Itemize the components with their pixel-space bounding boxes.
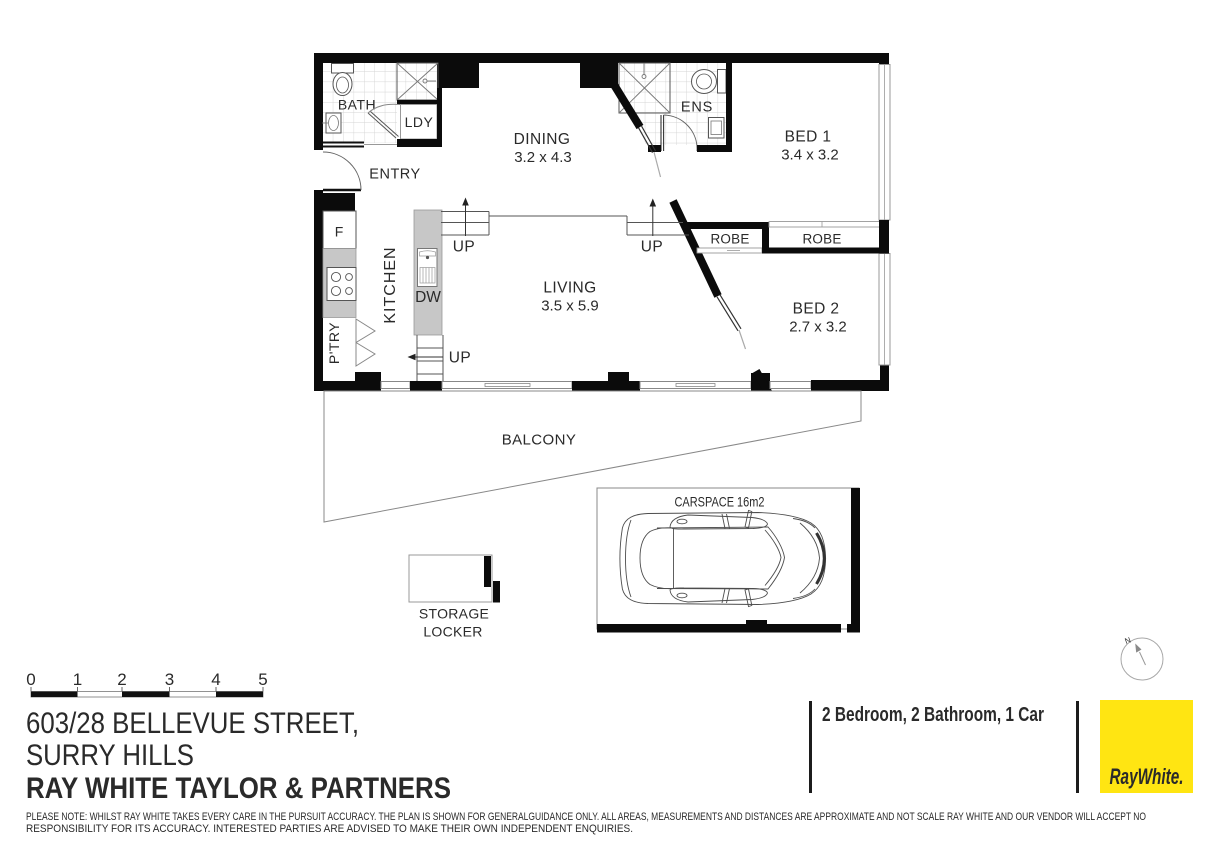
svg-text:2.7 x 3.2: 2.7 x 3.2 bbox=[789, 319, 847, 336]
svg-text:BED 2: BED 2 bbox=[793, 301, 840, 318]
svg-text:CARSPACE 16m2: CARSPACE 16m2 bbox=[675, 494, 765, 510]
svg-text:STORAGE: STORAGE bbox=[419, 606, 489, 622]
svg-text:RESPONSIBILITY FOR ITS ACCURAC: RESPONSIBILITY FOR ITS ACCURACY. INTERES… bbox=[26, 823, 633, 835]
svg-text:RayWhite.: RayWhite. bbox=[1110, 764, 1184, 789]
svg-text:4: 4 bbox=[211, 670, 220, 689]
svg-text:SURRY HILLS: SURRY HILLS bbox=[26, 739, 194, 772]
svg-text:603/28 BELLEVUE STREET,: 603/28 BELLEVUE STREET, bbox=[26, 707, 359, 740]
svg-text:BED 1: BED 1 bbox=[785, 129, 832, 146]
svg-text:PLEASE NOTE: WHILST RAY WHITE: PLEASE NOTE: WHILST RAY WHITE TAKES EVER… bbox=[26, 811, 1146, 823]
svg-text:DINING: DINING bbox=[514, 131, 571, 148]
svg-text:LOCKER: LOCKER bbox=[423, 624, 482, 640]
svg-text:ROBE: ROBE bbox=[802, 232, 841, 247]
svg-text:LIVING: LIVING bbox=[543, 280, 596, 297]
svg-text:0: 0 bbox=[26, 670, 35, 689]
svg-text:BALCONY: BALCONY bbox=[502, 432, 577, 449]
svg-text:3.4 x 3.2: 3.4 x 3.2 bbox=[781, 147, 839, 164]
svg-text:P'TRY: P'TRY bbox=[326, 322, 342, 364]
svg-text:UP: UP bbox=[449, 350, 472, 367]
svg-text:2: 2 bbox=[117, 670, 126, 689]
svg-text:UP: UP bbox=[453, 239, 476, 256]
svg-text:3.5 x 5.9: 3.5 x 5.9 bbox=[541, 298, 599, 315]
svg-text:ENS: ENS bbox=[681, 100, 713, 116]
svg-text:2 Bedroom, 2 Bathroom, 1 Car: 2 Bedroom, 2 Bathroom, 1 Car bbox=[822, 704, 1044, 726]
svg-text:UP: UP bbox=[641, 239, 664, 256]
svg-text:DW: DW bbox=[415, 289, 441, 306]
svg-text:RAY WHITE TAYLOR & PARTNERS: RAY WHITE TAYLOR & PARTNERS bbox=[26, 772, 451, 805]
svg-text:3.2 x 4.3: 3.2 x 4.3 bbox=[514, 149, 572, 166]
svg-text:3: 3 bbox=[165, 670, 174, 689]
svg-text:ENTRY: ENTRY bbox=[369, 167, 420, 183]
svg-text:LDY: LDY bbox=[405, 114, 434, 130]
svg-text:5: 5 bbox=[258, 670, 267, 689]
svg-text:ROBE: ROBE bbox=[710, 232, 749, 247]
svg-text:F: F bbox=[335, 224, 344, 240]
svg-text:KITCHEN: KITCHEN bbox=[382, 246, 399, 323]
svg-text:BATH: BATH bbox=[338, 97, 376, 113]
svg-text:1: 1 bbox=[73, 670, 82, 689]
